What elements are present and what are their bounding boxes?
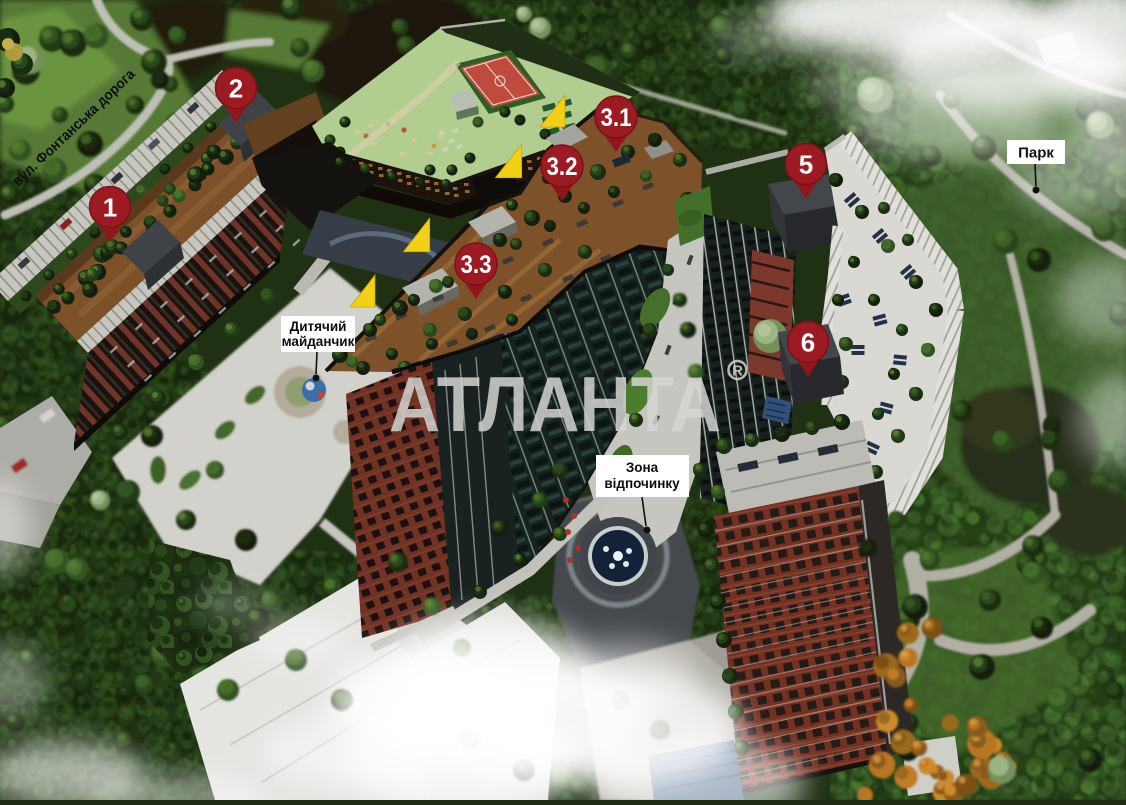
svg-text:5: 5	[799, 149, 813, 179]
svg-text:відпочинку: відпочинку	[604, 476, 680, 491]
svg-text:1: 1	[103, 192, 117, 222]
svg-text:6: 6	[801, 327, 815, 357]
svg-text:АТЛАНТА: АТЛАНТА	[389, 360, 721, 448]
svg-text:Дитячий: Дитячий	[290, 319, 347, 334]
svg-text:3.3: 3.3	[461, 251, 492, 279]
svg-text:3.2: 3.2	[547, 153, 578, 181]
svg-text:Зона: Зона	[626, 460, 659, 475]
svg-text:3.1: 3.1	[601, 104, 632, 132]
svg-text:R: R	[732, 363, 743, 380]
svg-text:майданчик: майданчик	[282, 334, 355, 349]
svg-text:Парк: Парк	[1018, 145, 1054, 162]
svg-text:2: 2	[229, 73, 243, 103]
